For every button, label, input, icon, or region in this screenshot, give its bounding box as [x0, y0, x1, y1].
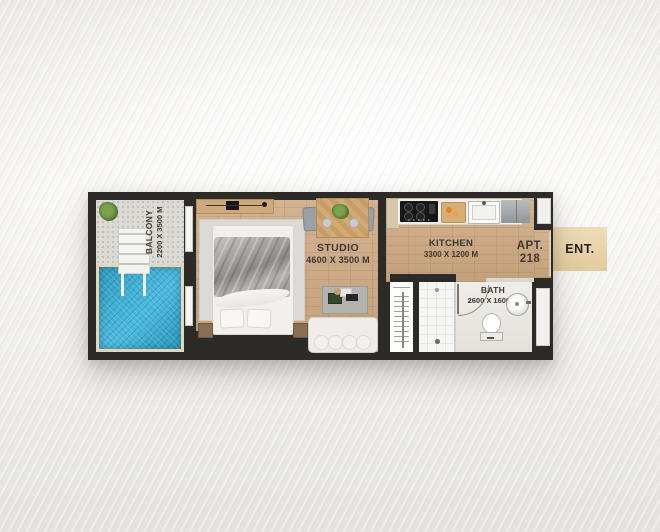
speaker-icon: [262, 202, 267, 207]
kitchen-sink-icon: [468, 201, 500, 224]
kitchen-dims: 3300 X 1200 M: [396, 250, 506, 260]
closet-rail: [402, 292, 404, 348]
stove-knobs: [408, 219, 430, 221]
nightstand-left: [198, 323, 213, 338]
faucet-icon: [482, 201, 486, 205]
entrance-label: ENT.: [565, 242, 595, 256]
interior-wall: [390, 274, 456, 282]
toilet-icon: [480, 313, 502, 341]
flush-button: [487, 337, 494, 339]
sofa-cushion: [328, 335, 343, 350]
shower-head-icon: [435, 288, 439, 292]
apt-line2: 218: [508, 253, 552, 266]
kitchen-label: KITCHEN 3300 X 1200 M: [396, 238, 506, 260]
fridge-icon: [501, 200, 530, 223]
balcony-door-icon: [185, 206, 193, 252]
soundbar: [206, 205, 262, 206]
sink-basin: [472, 205, 496, 220]
basin-drain: [515, 302, 519, 306]
sofa: [308, 317, 378, 353]
nightstand-right: [293, 323, 308, 338]
fridge-seam: [516, 200, 517, 223]
burner: [416, 203, 425, 212]
floor-plan: BALCONY 2200 X 3500 M STUDIO 4600 X 3500…: [88, 192, 553, 360]
wall-column: [537, 198, 551, 224]
plate-icon: [322, 218, 332, 228]
page-background: { "floorplan": { "apt": {"line1": "APT."…: [0, 0, 660, 532]
shower-area: [419, 282, 456, 352]
table-plant-icon: [332, 204, 349, 219]
balcony-plant-icon: [99, 202, 118, 221]
pool-steps-rail: [121, 270, 124, 296]
studio-label: STUDIO 4600 X 3500 M: [278, 242, 398, 266]
pool: [96, 264, 184, 352]
wall-column: [536, 288, 550, 346]
sofa-cushion: [356, 335, 371, 350]
studio-name: STUDIO: [278, 242, 398, 255]
wardrobe: [390, 282, 413, 352]
pillow-icon: [220, 308, 245, 328]
sofa-cushion: [314, 335, 329, 350]
cutting-board-icon: [441, 202, 466, 223]
plate-icon: [349, 218, 359, 228]
pillow-icon: [247, 308, 272, 328]
food-item: [453, 211, 458, 216]
sofa-cushion: [342, 335, 357, 350]
burner: [404, 203, 413, 212]
entrance-badge: ENT.: [553, 227, 607, 271]
apt-line1: APT.: [508, 240, 552, 253]
studio-dims: 4600 X 3500 M: [278, 255, 398, 266]
balcony-door-icon: [185, 286, 193, 326]
balcony-name: BALCONY: [144, 187, 155, 277]
basin-icon: [506, 293, 529, 316]
shower-drain-icon: [435, 339, 440, 344]
closet-shelf: [393, 287, 410, 288]
toilet-bowl: [482, 313, 501, 334]
food-item: [446, 207, 452, 213]
stove-icon: [400, 201, 438, 222]
tray-icon: [346, 294, 358, 301]
basin-faucet-icon: [526, 301, 531, 304]
stove-grill: [429, 204, 435, 214]
balcony-label: BALCONY 2200 X 3500 M: [144, 187, 166, 277]
balcony-dims: 2200 X 3500 M: [155, 187, 164, 277]
apartment-number-label: APT. 218: [508, 240, 552, 266]
bowl-icon: [334, 288, 341, 295]
kitchen-name: KITCHEN: [396, 238, 506, 250]
